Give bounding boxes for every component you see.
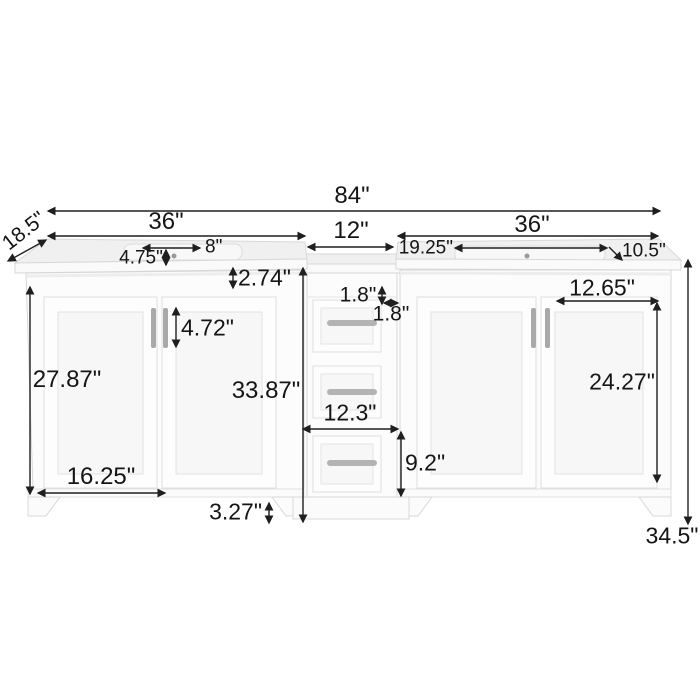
right-faucet-hole [525, 254, 530, 259]
middle-counter-front [301, 264, 401, 273]
left-door-left-handle [151, 308, 156, 348]
vanity-dimension-diagram: 84" 18.5" 36" 12" 36" 8" 4.75" 2.74" 4.7… [0, 0, 700, 700]
right-door-right-handle [545, 308, 550, 348]
left-faucet-hole [172, 254, 177, 259]
dim-middle-gap-h-label: 1.8" [373, 304, 410, 325]
dim-right-vanity-width-label: 36" [514, 213, 549, 237]
dim-left-sink-inset-label: 4.75" [119, 249, 163, 268]
middle-counter-top [301, 254, 401, 264]
dim-middle-height-label: 33.87" [232, 379, 301, 403]
dim-left-door-width-label: 16.25" [67, 465, 136, 489]
dim-toe-kick-label: 3.27" [209, 501, 262, 524]
dim-left-sink-span-label: 8" [205, 238, 222, 257]
dim-countertop-height-label: 2.74" [238, 267, 291, 290]
dim-overall-height-label: 34.5" [646, 525, 699, 548]
dim-right-door-width-label: 12.65" [569, 277, 635, 300]
dim-middle-width-label: 12" [333, 219, 368, 243]
right-door-left-handle [531, 308, 536, 348]
middle-drawer-1-handle [327, 320, 377, 326]
middle-drawer-2-handle [327, 389, 377, 395]
left-vanity-left-foot [28, 497, 60, 516]
dim-right-sink-side-label: 10.5" [622, 242, 666, 261]
dim-middle-gap-v-label: 1.8" [340, 285, 377, 306]
middle-drawer-3-handle [327, 460, 377, 466]
middle-cabinet-plinth [293, 497, 409, 519]
dim-right-sink-offset-label: 19.25" [399, 239, 453, 258]
vanity-diagram-drawing [0, 0, 700, 700]
dim-overall-width-label: 84" [334, 184, 369, 208]
dim-handle-length-label: 4.72" [181, 317, 234, 340]
dim-middle-drawer-width-label: 12.3" [324, 402, 377, 425]
left-door-right-handle [163, 308, 168, 348]
dim-bottom-drawer-height-label: 9.2" [405, 452, 445, 475]
right-vanity-right-foot [639, 497, 671, 516]
dim-right-door-height-label: 24.27" [589, 371, 655, 394]
left-door-left-panel [58, 312, 143, 474]
dim-left-vanity-width-label: 36" [148, 210, 183, 234]
right-bottom-rail [400, 489, 671, 497]
dim-left-door-height-label: 27.87" [33, 368, 102, 392]
